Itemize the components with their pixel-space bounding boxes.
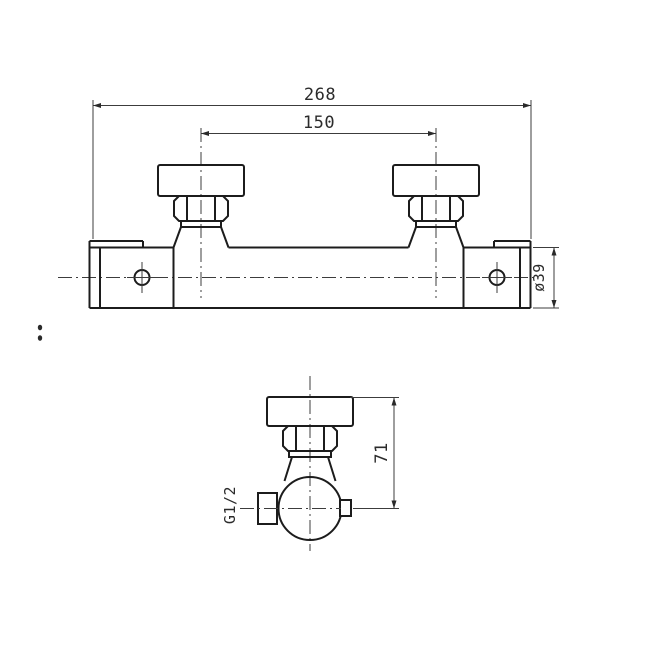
dim-150-arrow-right — [428, 131, 436, 136]
dim-valve-spacing: 150 — [201, 113, 436, 136]
dim-268-arrow-right — [523, 103, 531, 108]
technical-drawing-svg: 268 150 ø39 — [0, 0, 650, 650]
dim-valve-spacing-label: 150 — [303, 113, 335, 133]
stray-dot-top — [38, 325, 42, 331]
drawing-sheet: 268 150 ø39 — [0, 0, 650, 650]
dim-39-arrow-bottom — [552, 300, 557, 308]
dim-71-arrow-bottom — [392, 501, 397, 509]
right-hole-crosshair — [482, 262, 512, 293]
dim-150-arrow-left — [201, 131, 209, 136]
dim-height-71: 71 — [350, 398, 399, 509]
dim-268-arrow-left — [93, 103, 101, 108]
dim-bar-diameter-label: ø39 — [530, 263, 548, 292]
wall-bracket-right — [464, 241, 531, 308]
dim-height-label: 71 — [372, 442, 392, 463]
dim-39-arrow-top — [552, 248, 557, 256]
dim-overall-width: 268 — [93, 85, 531, 239]
outlet-boss — [340, 500, 351, 516]
left-hole-crosshair — [127, 262, 157, 293]
front-view: 268 150 ø39 — [58, 85, 559, 308]
dim-bar-diameter: ø39 — [530, 248, 559, 309]
stray-marks — [38, 325, 42, 341]
inlet-thread-label: G1/2 — [221, 486, 239, 524]
dim-71-arrow-top — [392, 398, 397, 406]
dim-overall-width-label: 268 — [304, 85, 336, 105]
stray-dot-bottom — [38, 335, 42, 341]
wall-bracket-left — [90, 241, 174, 308]
side-view: G1/2 71 — [221, 376, 399, 551]
